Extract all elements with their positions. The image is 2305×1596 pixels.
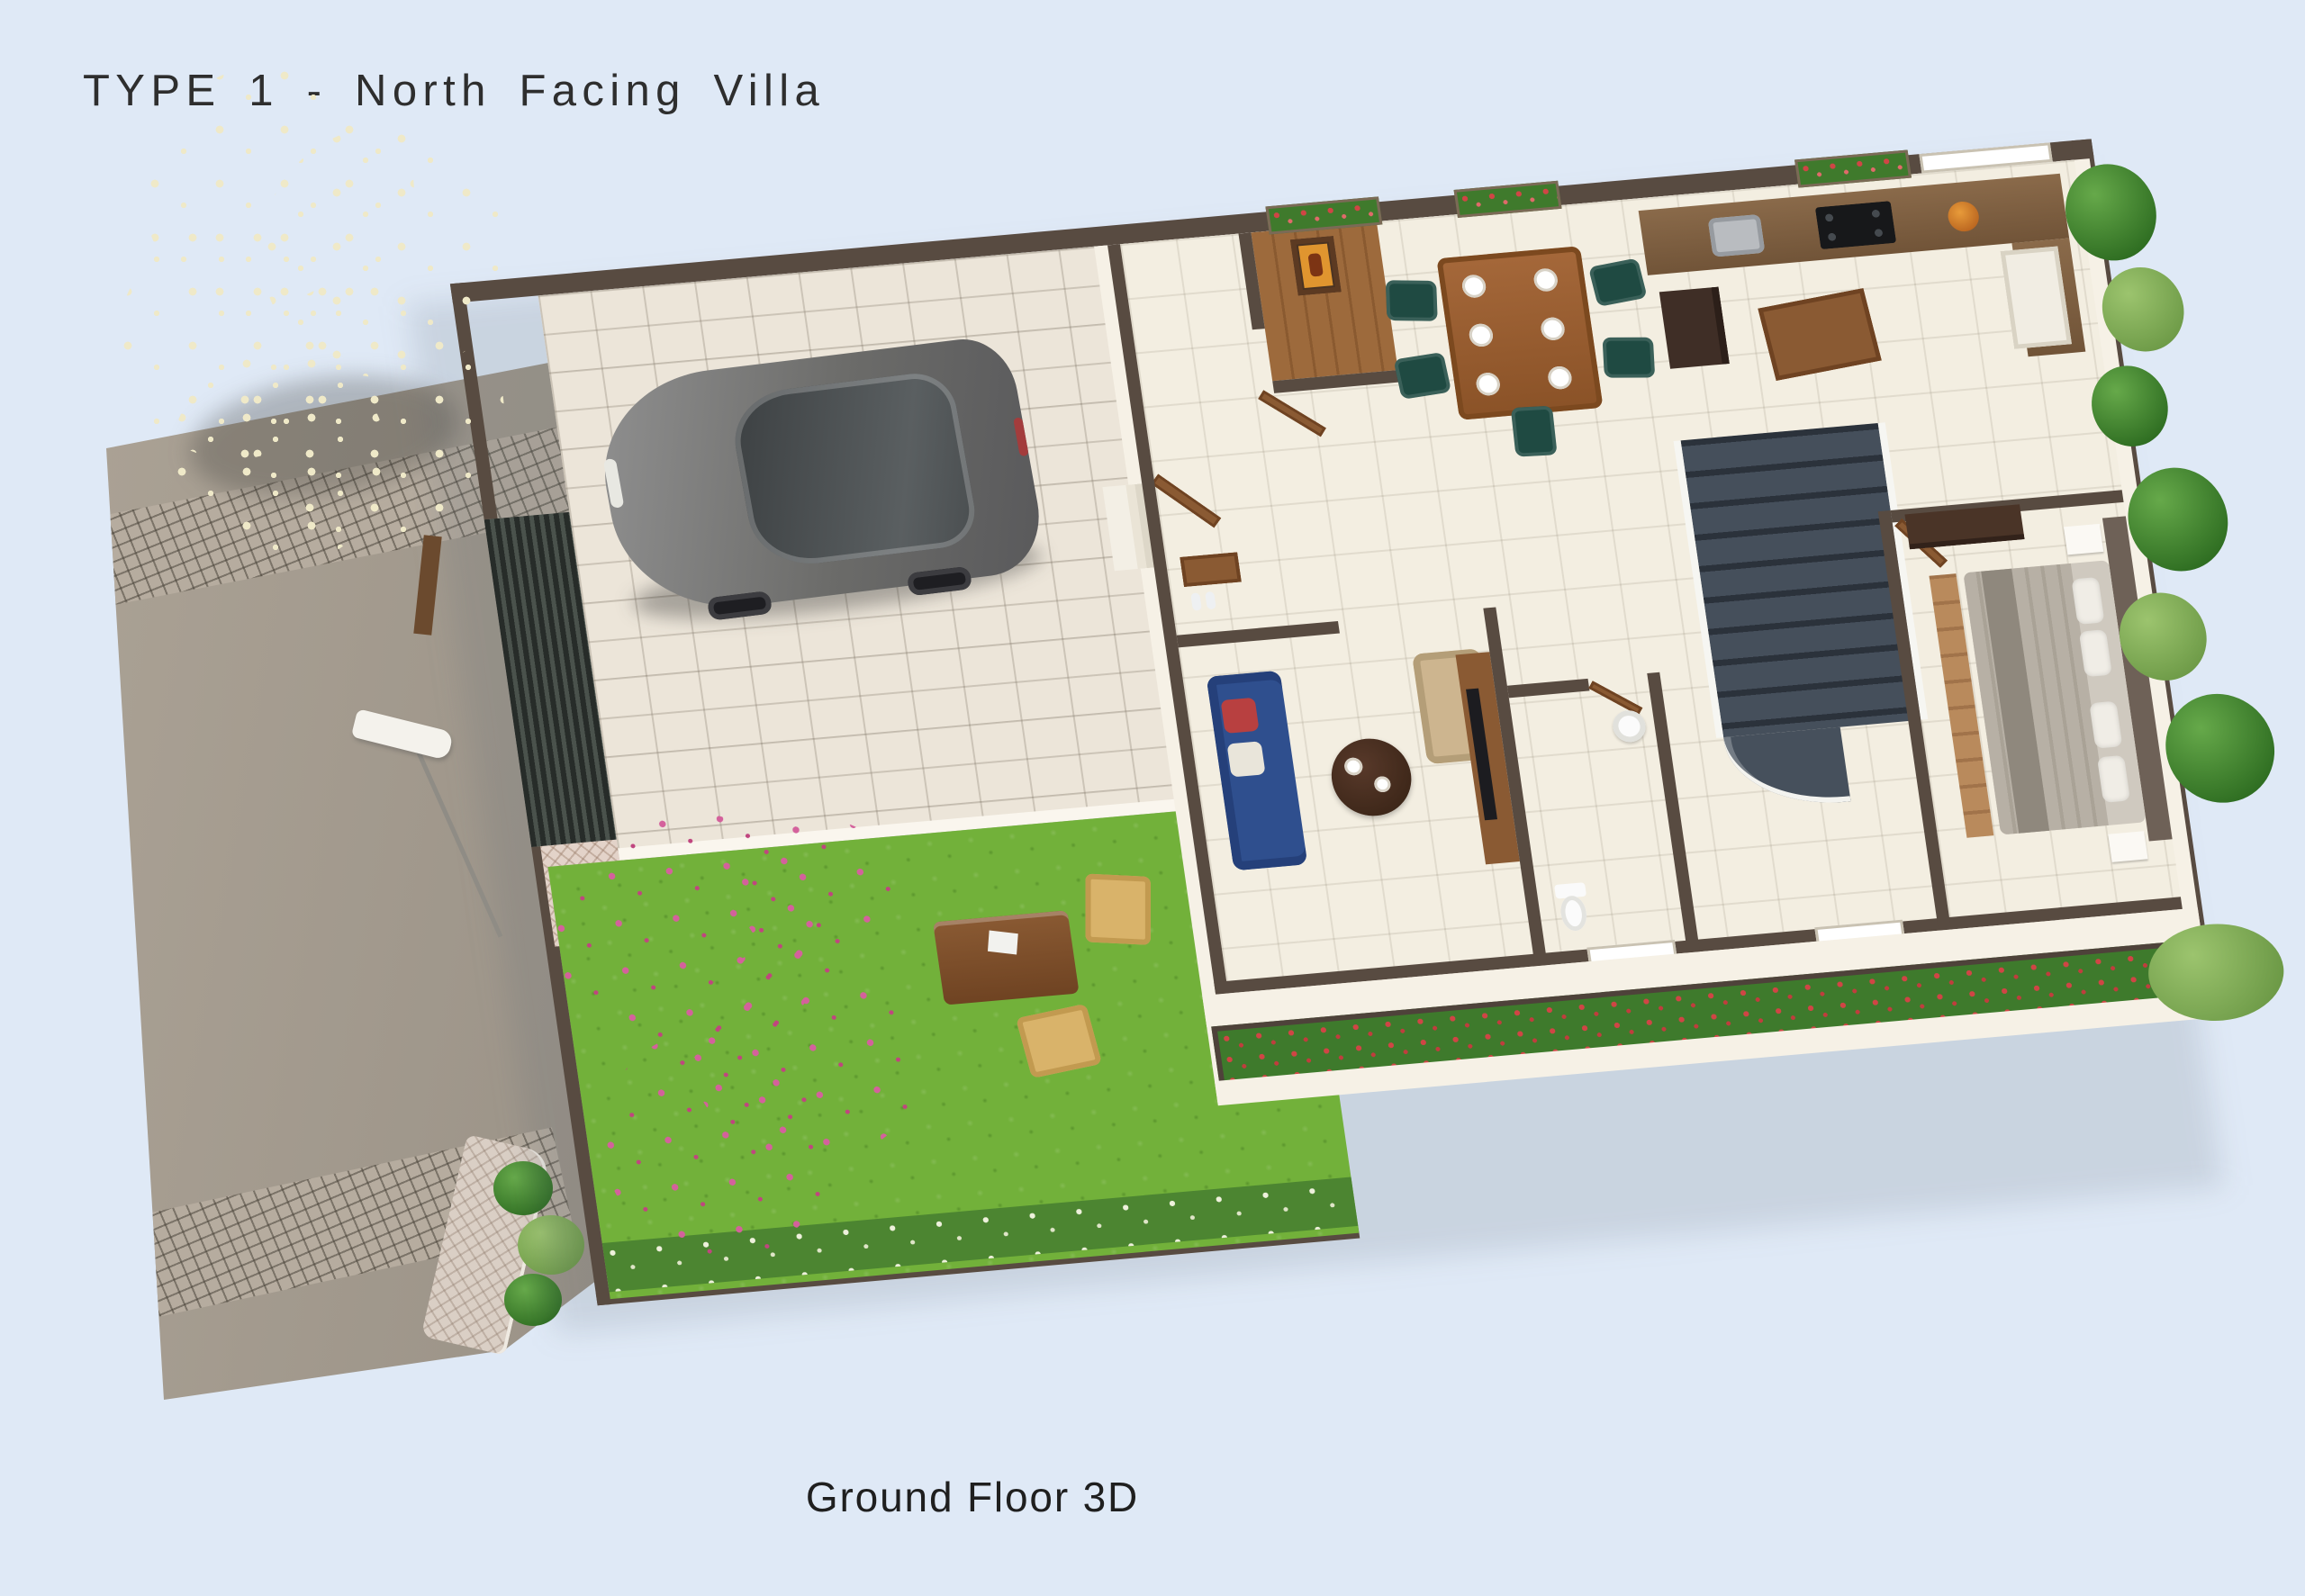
table-plate: [1343, 757, 1364, 776]
dining-chair: [1603, 338, 1656, 378]
bed-pillow: [2079, 629, 2112, 677]
dining-plate: [1468, 323, 1495, 348]
dining-plate: [1532, 267, 1559, 293]
sofa-cushion-red: [1220, 698, 1259, 734]
table-book: [988, 931, 1018, 955]
kitchen-hob: [1815, 201, 1896, 249]
caption: Ground Floor 3D: [378, 1473, 1567, 1521]
dining-plate: [1475, 372, 1502, 397]
dining-chair: [1393, 352, 1451, 400]
fridge: [1659, 287, 1730, 369]
car-glass-roof: [727, 369, 981, 571]
dining-plate: [1540, 317, 1567, 342]
bed-pillow: [2097, 755, 2130, 803]
bedside-table: [2064, 524, 2103, 555]
page-background: TYPE 1 - North Facing Villa: [0, 0, 2305, 1596]
car: [588, 334, 1050, 620]
dining-plate: [1547, 365, 1574, 391]
tree-canopy: [171, 351, 387, 567]
dining-chair: [1511, 406, 1558, 457]
deity-frame: [1290, 236, 1342, 295]
sofa-cushion-white: [1226, 741, 1265, 777]
wc-bowl: [1559, 895, 1588, 932]
bed-pillow: [2071, 577, 2104, 625]
table-plate: [1373, 776, 1391, 793]
dining-table: [1436, 246, 1603, 420]
bed-pillow: [2089, 701, 2122, 749]
bedside-table: [2108, 831, 2147, 862]
tree-trunk: [413, 535, 441, 635]
kitchen-sink: [1708, 214, 1766, 257]
shoe-bench: [1180, 552, 1242, 587]
dining-plate: [1460, 274, 1487, 299]
dining-chair: [1386, 280, 1438, 321]
outdoor-chair: [1085, 874, 1150, 945]
outdoor-table: [933, 910, 1080, 1005]
flowering-tree: [63, 45, 531, 621]
villa-plot: [423, 139, 2240, 1316]
